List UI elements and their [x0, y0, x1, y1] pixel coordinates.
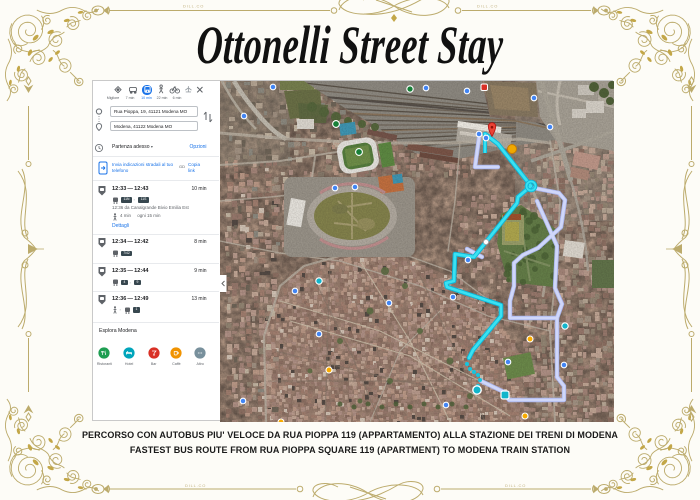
- svg-text:DILL.CO: DILL.CO: [477, 4, 498, 9]
- svg-text:DILL.CO: DILL.CO: [183, 4, 204, 9]
- svg-text:DILL.CO: DILL.CO: [185, 483, 206, 488]
- svg-text:DILL.CO: DILL.CO: [505, 483, 526, 488]
